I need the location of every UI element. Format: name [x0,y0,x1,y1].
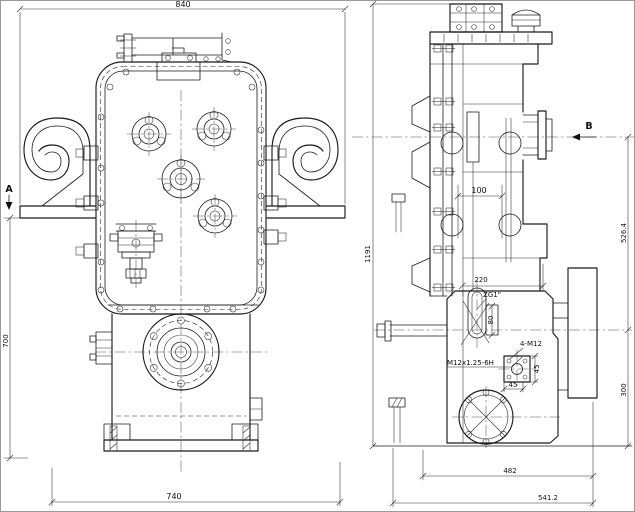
front-dim-height: 700 [2,215,28,461]
front-view: 840 [2,0,348,506]
section-label-b: B [572,121,596,141]
dim-100: 100 [471,186,486,195]
side-dim-lower-height: 300 [620,330,631,449]
dim-220: 220 [474,276,487,284]
bolt [432,284,455,291]
bolt [432,124,455,131]
side-dim-boss-height: 80 [487,303,495,338]
front-dim-base-width: 740 [49,462,343,506]
dim-700: 700 [2,334,10,347]
side-dim-square-width: 45 [501,381,526,392]
dim-541: 541.2 [538,494,558,502]
lifting-hook-right [272,118,338,206]
bolt [432,246,455,253]
dim-740: 740 [166,492,181,501]
section-b-text: B [585,121,592,132]
lifting-hook-left [24,118,90,206]
front-pipe-assembly [117,33,232,62]
side-dim-overall-depth: 541.2 [390,448,596,507]
zg1-label: ZG1" [483,291,501,299]
engineering-drawing: 840 [0,0,635,512]
bearing-port [157,155,205,203]
side-dim-overall-height: 1191 [364,1,450,449]
dim-526: 526.4 [620,222,628,243]
side-left-flanges [374,96,632,443]
dim-45-h: 45 [509,381,518,389]
side-joint-bolts [432,45,455,291]
section-b-arrow [572,134,580,141]
bearing-port [193,194,237,238]
dim-80: 80 [487,316,495,325]
dim-300: 300 [620,383,628,396]
dim-1191: 1191 [364,245,372,263]
section-a-text: A [5,184,13,195]
side-bottom-port [452,386,560,448]
dim-482: 482 [503,467,516,475]
front-bearing-ports [127,107,237,238]
bracket-plate-left [20,206,96,218]
bolt [432,45,455,52]
label-m12: M12x1.25-6H [447,359,494,367]
front-lower-crankcase [90,314,262,451]
side-view: 1191 B [352,1,634,507]
dim-840: 840 [175,0,190,9]
b-shaft-flange [523,111,552,159]
front-valve-assembly [110,220,162,288]
section-label-a: A [5,184,13,210]
bearing-port [127,112,171,156]
dim-45-v: 45 [533,365,541,374]
side-upper-body [430,44,547,296]
side-dim-upper-height: 526.4 [620,134,631,333]
breather-cap [512,10,540,32]
front-dim-overall-width: 840 [17,0,348,204]
side-dim-shaft-offset: 100 [455,185,505,238]
bearing-port [192,107,236,151]
drawing-sheet: 840 [0,0,635,512]
bolt [432,98,455,105]
front-output-flange [95,314,268,390]
bolt [432,168,455,175]
side-top-flange [430,4,552,44]
section-a-arrow [6,202,13,210]
label-4-m12: 4-M12 [520,340,542,348]
